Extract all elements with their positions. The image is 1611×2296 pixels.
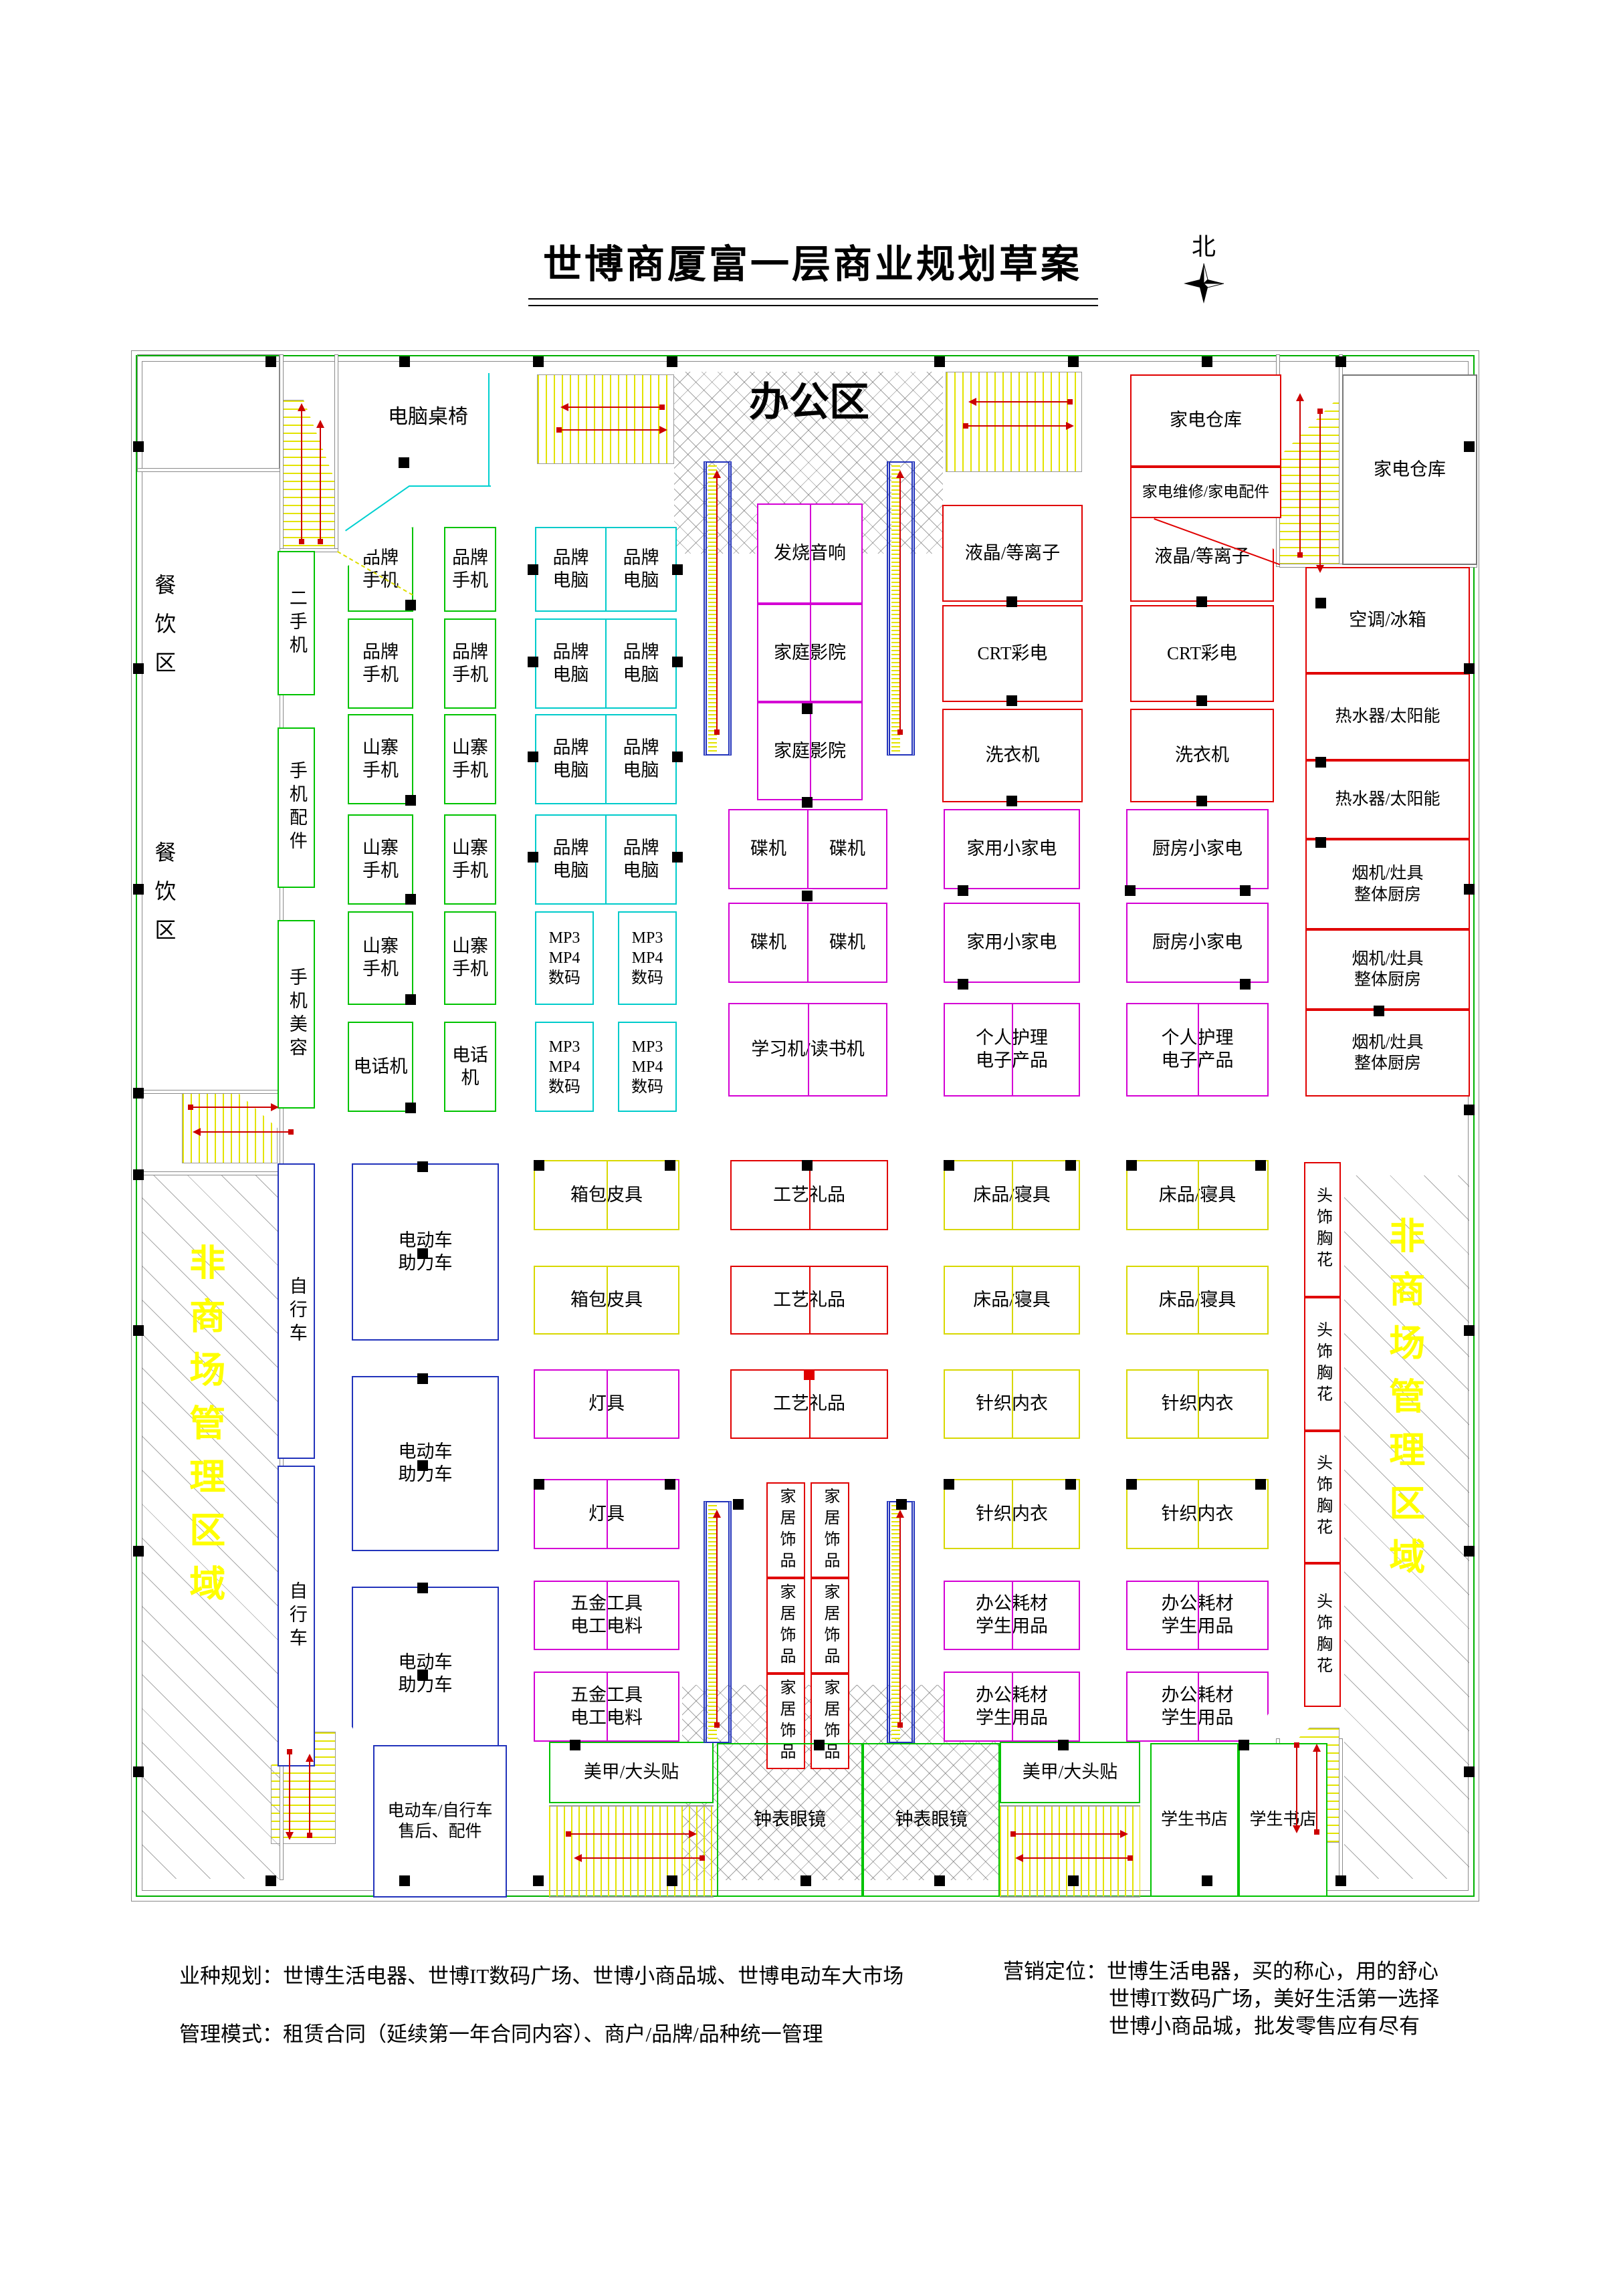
mp3-digital-2-label: MP3 MP4 数码 (631, 928, 663, 988)
flow-arrow-3 (559, 429, 659, 431)
non-mall-zone-label-left: 非商场管理区域 (182, 1244, 225, 1618)
title-underline-1 (528, 298, 1098, 300)
column-pillar-74 (1065, 1479, 1076, 1490)
column-pillar-73 (944, 1479, 954, 1490)
column-pillar-45 (405, 1103, 416, 1113)
column-pillar-79 (417, 1373, 428, 1384)
column-pillar-86 (814, 1740, 825, 1750)
hood-stove-kitchen-3-label: 烟机/灶具 整体厨房 (1352, 1032, 1424, 1074)
stall-divider (1012, 1371, 1013, 1438)
home-decor-1: 家居饰品 (766, 1482, 805, 1578)
nail-art-sticker-2-label: 美甲/大头贴 (1023, 1761, 1118, 1784)
knockoff-phone-3b: 山寨 手机 (444, 911, 496, 1005)
bicycle-1-label: 自行车 (285, 1276, 308, 1347)
flow-arrow-2 (568, 407, 662, 408)
column-pillar-80 (417, 1460, 428, 1471)
flow-arrow-19 (582, 1857, 702, 1859)
column-pillar-53 (1006, 796, 1017, 806)
column-pillar-83 (733, 1499, 744, 1510)
lamp-2: 灯具 (534, 1479, 679, 1549)
nail-art-sticker-1-label: 美甲/大头贴 (584, 1761, 679, 1784)
appliance-warehouse-2: 家电仓库 (1342, 374, 1477, 565)
household-appliance-2-label: 家用小家电 (967, 931, 1057, 954)
disc-player-pair-1-label: 碟机 (829, 838, 865, 860)
column-pillar-38 (672, 752, 683, 762)
hair-accessory-4: 头饰胸花 (1304, 1563, 1341, 1707)
bicycle-1: 自行车 (278, 1163, 315, 1459)
home-decor-2: 家居饰品 (811, 1482, 849, 1578)
column-pillar-27 (1464, 884, 1475, 895)
brand-computer-pair-4-half-2: 品牌 电脑 (605, 816, 675, 903)
escalator-upper-left (704, 461, 732, 756)
column-pillar-41 (405, 600, 416, 610)
column-pillar-26 (1464, 663, 1475, 674)
column-pillar-0 (265, 356, 276, 367)
column-pillar-23 (133, 1546, 144, 1557)
lcd-plasma-1: 液晶/等离子 (942, 505, 1083, 602)
wall-segment-1 (334, 354, 338, 552)
column-pillar-29 (1464, 1325, 1475, 1336)
secondhand-phone: 二手机 (278, 551, 315, 695)
nail-art-sticker-1: 美甲/大头贴 (549, 1742, 714, 1803)
washing-machine-1: 洗衣机 (942, 709, 1083, 802)
disc-player-pair-1-half-2: 碟机 (807, 810, 886, 888)
corner-room-top-left (137, 354, 280, 469)
column-pillar-5 (1068, 356, 1079, 367)
luggage-leather-2: 箱包皮具 (534, 1266, 679, 1335)
phone-accessories: 手机配件 (278, 727, 315, 888)
knockoff-phone-2b-label: 山寨 手机 (452, 837, 488, 883)
escalator-lower-right (887, 1501, 915, 1743)
flow-arrow-7 (1319, 411, 1321, 565)
office-supplies-3: 办公耗材 学生用品 (944, 1672, 1080, 1742)
student-bookstore-2: 学生书店 (1239, 1743, 1327, 1897)
brand-phone-2b-label: 品牌 手机 (452, 641, 488, 687)
secondhand-phone-label: 二手机 (285, 588, 308, 659)
knockoff-phone-2b: 山寨 手机 (444, 814, 496, 905)
dining-area-label-1: 餐饮区 (151, 574, 177, 690)
marketing-line-3: 世博小商品城，批发零售应有尽有 (1003, 2013, 1578, 2040)
bedding-4: 床品/寝具 (1126, 1266, 1269, 1335)
knit-underwear-1: 针织内衣 (944, 1369, 1080, 1439)
hair-accessory-2: 头饰胸花 (1304, 1297, 1341, 1431)
home-decor-3: 家居饰品 (766, 1578, 805, 1674)
knit-underwear-3: 针织内衣 (944, 1479, 1080, 1549)
column-pillar-72 (665, 1479, 675, 1490)
column-pillar-43 (405, 894, 416, 905)
stall-divider (607, 1161, 608, 1229)
hood-stove-kitchen-1: 烟机/灶具 整体厨房 (1305, 839, 1470, 929)
learning-machine: 学习机/读书机 (728, 1003, 887, 1097)
flow-arrow-4 (976, 401, 1070, 403)
stall-divider (810, 605, 811, 701)
craft-gift-2: 工艺礼品 (730, 1266, 888, 1335)
ac-fridge-label: 空调/冰箱 (1349, 609, 1426, 632)
disc-player-pair-1-label: 碟机 (750, 838, 786, 860)
brand-phone-2a-label: 品牌 手机 (362, 641, 399, 687)
column-pillar-31 (1464, 1766, 1475, 1777)
column-pillar-58 (958, 979, 968, 990)
stair-top-center-right (946, 372, 1082, 472)
marketing-label: 营销定位： (1003, 1960, 1107, 1983)
column-pillar-63 (1374, 1006, 1384, 1016)
stall-divider (1198, 1371, 1199, 1438)
notes-right: 营销定位：世博生活电器，买的称心，用的舒心 世博IT数码广场，美好生活第一选择 … (1003, 1958, 1578, 2040)
household-appliance-1: 家用小家电 (944, 809, 1080, 889)
knockoff-phone-1a: 山寨 手机 (348, 714, 413, 804)
watch-glasses-2-label: 钟表眼镜 (895, 1809, 968, 1831)
ebike-service-parts-label: 电动车/自行车 售后、配件 (388, 1801, 493, 1843)
column-pillar-8 (265, 1875, 276, 1886)
column-pillar-84 (896, 1499, 907, 1510)
title-underline-2 (528, 305, 1098, 306)
column-pillar-61 (1315, 757, 1326, 768)
disc-player-pair-2-label: 碟机 (829, 931, 865, 954)
luggage-leather-1: 箱包皮具 (534, 1160, 679, 1230)
stall-divider (607, 1673, 608, 1740)
escalator-upper-right (887, 461, 915, 756)
disc-player-pair-2-label: 碟机 (750, 931, 786, 954)
home-decor-4-label: 家居饰品 (820, 1583, 840, 1669)
crt-tv-1-label: CRT彩电 (978, 643, 1048, 665)
column-pillar-82 (417, 1670, 428, 1680)
brand-computer-pair-3-label: 品牌 电脑 (623, 737, 659, 782)
column-pillar-30 (1464, 1546, 1475, 1557)
page-title: 世博商厦富一层商业规划草案 (508, 233, 1117, 289)
appliance-warehouse-1-label: 家电仓库 (1170, 409, 1242, 432)
brand-computer-pair-3: 品牌 电脑品牌 电脑 (535, 714, 677, 804)
marketing-line-1: 世博生活电器，买的称心，用的舒心 (1107, 1960, 1438, 1983)
hair-accessory-2-label: 头饰胸花 (1313, 1321, 1333, 1407)
column-pillar-69 (1126, 1160, 1137, 1171)
column-pillar-14 (1068, 1875, 1079, 1886)
stall-divider (808, 1004, 809, 1095)
knockoff-phone-1b-label: 山寨 手机 (452, 737, 488, 782)
column-pillar-52 (1196, 695, 1207, 706)
column-pillar-37 (528, 752, 538, 762)
stall-divider (1012, 1004, 1013, 1095)
brand-computer-pair-1-half-1: 品牌 电脑 (536, 528, 605, 610)
household-appliance-1-label: 家用小家电 (967, 838, 1057, 860)
column-pillar-32 (399, 457, 409, 468)
computer-desk-area-label: 电脑桌椅 (348, 405, 508, 429)
hifi-audio: 发烧音响 (757, 503, 863, 604)
column-pillar-71 (534, 1479, 544, 1490)
appliance-repair-label: 家电维修/家电配件 (1142, 483, 1269, 502)
brand-computer-pair-2: 品牌 电脑品牌 电脑 (535, 618, 677, 709)
knockoff-phone-3a-label: 山寨 手机 (362, 935, 399, 981)
column-pillar-55 (958, 885, 968, 896)
washing-machine-2-label: 洗衣机 (1175, 744, 1229, 767)
column-pillar-20 (133, 1088, 144, 1099)
telephone-2: 电话机 (444, 1022, 496, 1112)
craft-gift-3: 工艺礼品 (730, 1369, 888, 1439)
brand-phone-1b: 品牌 手机 (444, 527, 496, 612)
stall-divider (1198, 1267, 1199, 1333)
flow-arrow-9 (899, 478, 901, 732)
column-pillar-70 (1255, 1160, 1266, 1171)
student-bookstore-2-label: 学生书店 (1249, 1809, 1316, 1830)
column-pillar-87 (1058, 1740, 1069, 1750)
mp3-digital-4: MP3 MP4 数码 (618, 1022, 677, 1112)
column-pillar-9 (399, 1875, 410, 1886)
brand-computer-pair-2-half-2: 品牌 电脑 (605, 620, 675, 707)
column-pillar-76 (1255, 1479, 1266, 1490)
hood-stove-kitchen-2-label: 烟机/灶具 整体厨房 (1352, 949, 1424, 991)
kitchen-appliance-1-label: 厨房小家电 (1152, 838, 1243, 860)
stall-divider (1198, 1480, 1199, 1548)
kitchen-appliance-2: 厨房小家电 (1126, 903, 1269, 983)
column-pillar-50 (1196, 596, 1207, 607)
stall-divider (809, 1161, 811, 1229)
home-decor-3-label: 家居饰品 (776, 1583, 796, 1669)
appliance-warehouse-2-label: 家电仓库 (1374, 459, 1446, 481)
stall-divider (1198, 1161, 1199, 1229)
column-pillar-40 (672, 852, 683, 863)
column-pillar-28 (1464, 1105, 1475, 1115)
column-pillar-11 (667, 1875, 677, 1886)
flow-arrow-5 (966, 425, 1066, 427)
brand-computer-pair-1-label: 品牌 电脑 (553, 547, 589, 592)
hair-accessory-3-label: 头饰胸花 (1313, 1454, 1333, 1540)
column-pillar-13 (934, 1875, 945, 1886)
appliance-repair: 家电维修/家电配件 (1130, 467, 1281, 518)
column-pillar-6 (1202, 356, 1212, 367)
wall-segment-2 (137, 468, 280, 472)
hardware-tools-2: 五金工具 电工电料 (534, 1672, 679, 1742)
bedding-3: 床品/寝具 (944, 1266, 1080, 1335)
column-pillar-17 (133, 441, 144, 452)
flow-arrow-6 (1299, 401, 1301, 555)
student-bookstore-1-label: 学生书店 (1161, 1809, 1228, 1830)
column-pillar-35 (528, 657, 538, 667)
column-pillar-59 (1240, 979, 1251, 990)
flow-arrow-10 (716, 1518, 718, 1725)
column-pillar-47 (802, 797, 813, 808)
brand-phone-2a: 品牌 手机 (348, 618, 413, 709)
column-pillar-36 (672, 657, 683, 667)
column-pillar-22 (133, 1325, 144, 1336)
stall-divider (810, 505, 811, 602)
knockoff-phone-2a-label: 山寨 手机 (362, 837, 399, 883)
brand-phone-2b: 品牌 手机 (444, 618, 496, 709)
nail-art-sticker-2: 美甲/大头贴 (1000, 1742, 1140, 1803)
appliance-warehouse-1: 家电仓库 (1130, 374, 1281, 467)
column-pillar-4 (934, 356, 945, 367)
home-decor-2-label: 家居饰品 (820, 1488, 840, 1573)
disc-player-pair-2-half-2: 碟机 (807, 904, 886, 982)
column-pillar-78 (417, 1248, 428, 1259)
hood-stove-kitchen-2: 烟机/灶具 整体厨房 (1305, 929, 1470, 1010)
flow-arrow-0 (301, 411, 302, 542)
column-pillar-42 (405, 795, 416, 806)
stall-divider (810, 703, 811, 799)
water-heater-solar-1-label: 热水器/太阳能 (1335, 706, 1440, 727)
telephone-2-label: 电话机 (445, 1044, 495, 1090)
column-pillar-25 (1464, 441, 1475, 452)
brand-computer-pair-4-label: 品牌 电脑 (553, 837, 589, 883)
column-pillar-60 (1315, 598, 1326, 608)
crt-tv-2-label: CRT彩电 (1167, 643, 1237, 665)
column-pillar-2 (533, 356, 544, 367)
stall-divider (1198, 1582, 1199, 1649)
column-pillar-15 (1202, 1875, 1212, 1886)
ebike-service-parts: 电动车/自行车 售后、配件 (373, 1745, 507, 1898)
column-pillar-75 (1126, 1479, 1137, 1490)
hair-accessory-1: 头饰胸花 (1304, 1162, 1341, 1297)
stall-divider (1012, 1267, 1013, 1333)
hardware-tools-1: 五金工具 电工电料 (534, 1581, 679, 1650)
office-area-label: 办公区 (736, 378, 883, 427)
knit-underwear-2: 针织内衣 (1126, 1369, 1269, 1439)
wall-segment-4 (137, 1171, 280, 1175)
flow-arrow-13 (201, 1131, 291, 1133)
stall-divider (1198, 1004, 1199, 1095)
stall-divider (1012, 1582, 1013, 1649)
brand-computer-pair-2-half-1: 品牌 电脑 (536, 620, 605, 707)
knit-underwear-4: 针织内衣 (1126, 1479, 1269, 1549)
knockoff-phone-2a: 山寨 手机 (348, 814, 413, 905)
watch-glasses-2: 钟表眼镜 (863, 1743, 1000, 1897)
washing-machine-1-label: 洗衣机 (986, 744, 1040, 767)
brand-computer-pair-2-label: 品牌 电脑 (553, 641, 589, 687)
bedding-2: 床品/寝具 (1126, 1160, 1269, 1230)
flow-arrow-17 (1316, 1752, 1317, 1832)
column-pillar-54 (1196, 796, 1207, 806)
compass-star-icon (1182, 262, 1225, 305)
home-decor-4: 家居饰品 (811, 1578, 849, 1674)
watch-glasses-1-label: 钟表眼镜 (754, 1809, 826, 1831)
ac-fridge: 空调/冰箱 (1305, 567, 1470, 673)
stall-divider (607, 1480, 608, 1548)
column-pillar-16 (1335, 1875, 1346, 1886)
mp3-digital-2: MP3 MP4 数码 (618, 911, 677, 1005)
column-pillar-77 (417, 1161, 428, 1172)
entrance-ramp-left (549, 1805, 714, 1898)
disc-player-pair-2-half-1: 碟机 (730, 904, 807, 982)
stall-divider (809, 1371, 811, 1438)
column-pillar-65 (665, 1160, 675, 1171)
wall-segment-10 (1339, 1738, 1343, 1880)
brand-computer-pair-1-half-2: 品牌 电脑 (605, 528, 675, 610)
column-pillar-49 (1006, 596, 1017, 607)
management-mode-label: 管理模式： (179, 2023, 283, 2046)
crt-tv-2: CRT彩电 (1130, 605, 1274, 702)
column-pillar-57 (1240, 885, 1251, 896)
management-mode-text: 租赁合同（延续第一年合同内容）、商户/品牌/品种统一管理 (283, 2023, 823, 2046)
title-block: 世博商厦富一层商业规划草案 (508, 233, 1117, 289)
brand-phone-1b-label: 品牌 手机 (452, 547, 488, 592)
stair-top-center-left (537, 374, 674, 464)
hair-accessory-1-label: 头饰胸花 (1313, 1187, 1333, 1272)
column-pillar-7 (1335, 356, 1346, 367)
column-pillar-66 (802, 1160, 813, 1171)
column-pillar-18 (133, 663, 144, 674)
bicycle-2-label: 自行车 (285, 1581, 308, 1651)
hood-stove-kitchen-3: 烟机/灶具 整体厨房 (1305, 1010, 1470, 1097)
brand-computer-pair-4: 品牌 电脑品牌 电脑 (535, 814, 677, 905)
knockoff-phone-1a-label: 山寨 手机 (362, 737, 399, 782)
floor-plan: 品牌 手机品牌 手机品牌 手机品牌 手机山寨 手机山寨 手机山寨 手机山寨 手机… (0, 0, 1611, 2296)
lcd-plasma-1-label: 液晶/等离子 (965, 542, 1061, 565)
personal-care-2: 个人护理 电子产品 (1126, 1003, 1269, 1097)
disc-player-pair-1-half-1: 碟机 (730, 810, 807, 888)
column-pillar-39 (528, 852, 538, 863)
disc-player-pair-1: 碟机碟机 (728, 809, 887, 889)
home-theater-1: 家庭影院 (757, 604, 863, 702)
flow-arrow-1 (320, 428, 321, 542)
crt-tv-1: CRT彩电 (942, 605, 1083, 702)
stall-divider (607, 1267, 608, 1333)
stall-divider (809, 1267, 811, 1333)
business-plan-label: 业种规划： (179, 1964, 283, 1988)
column-pillar-19 (133, 884, 144, 895)
column-pillar-88 (1239, 1740, 1249, 1750)
flow-arrow-12 (191, 1107, 271, 1108)
brand-computer-pair-3-half-1: 品牌 电脑 (536, 715, 605, 803)
mp3-digital-3: MP3 MP4 数码 (535, 1022, 594, 1112)
brand-computer-pair-3-label: 品牌 电脑 (553, 737, 589, 782)
mp3-digital-3-label: MP3 MP4 数码 (548, 1037, 580, 1097)
home-theater-2: 家庭影院 (757, 702, 863, 800)
office-supplies-4: 办公耗材 学生用品 (1126, 1672, 1269, 1742)
column-pillar-44 (405, 994, 416, 1005)
phone-accessories-label: 手机配件 (285, 761, 308, 854)
knockoff-phone-3b-label: 山寨 手机 (452, 935, 488, 981)
lamp-1: 灯具 (534, 1369, 679, 1439)
water-heater-solar-2-label: 热水器/太阳能 (1335, 789, 1440, 810)
brand-computer-pair-1-label: 品牌 电脑 (623, 547, 659, 592)
compass-north-label: 北 (1180, 227, 1227, 262)
column-pillar-34 (672, 564, 683, 575)
telephone-1: 电话机 (348, 1022, 413, 1112)
escalator-lower-left (704, 1501, 732, 1743)
column-pillar-68 (1065, 1160, 1076, 1171)
telephone-1-label: 电话机 (354, 1056, 408, 1078)
kitchen-appliance-1: 厨房小家电 (1126, 809, 1269, 889)
mp3-digital-4-label: MP3 MP4 数码 (631, 1037, 663, 1097)
business-plan-text: 世博生活电器、世博IT数码广场、世博小商品城、世博电动车大市场 (283, 1964, 903, 1988)
column-pillar-81 (417, 1583, 428, 1593)
knockoff-phone-1b: 山寨 手机 (444, 714, 496, 804)
flow-arrow-16 (1296, 1745, 1297, 1825)
flow-arrow-8 (716, 478, 718, 732)
flow-arrow-18 (568, 1833, 689, 1835)
personal-care-1: 个人护理 电子产品 (944, 1003, 1080, 1097)
column-pillar-62 (1315, 837, 1326, 848)
stall-divider (1012, 1161, 1013, 1229)
office-supplies-1: 办公耗材 学生用品 (944, 1581, 1080, 1650)
column-pillar-33 (528, 564, 538, 575)
brand-computer-pair-2-label: 品牌 电脑 (623, 641, 659, 687)
column-pillar-1 (399, 356, 410, 367)
column-pillar-67 (944, 1160, 954, 1171)
flow-arrow-21 (1023, 1857, 1130, 1859)
knockoff-phone-3a: 山寨 手机 (348, 911, 413, 1005)
flow-arrow-15 (309, 1762, 310, 1835)
bicycle-2: 自行车 (278, 1466, 315, 1766)
flow-arrow-11 (899, 1518, 901, 1725)
home-decor-1-label: 家居饰品 (776, 1488, 796, 1573)
washing-machine-2: 洗衣机 (1130, 709, 1274, 802)
brand-computer-pair-1: 品牌 电脑品牌 电脑 (535, 527, 677, 612)
compass: 北 (1180, 227, 1227, 308)
hood-stove-kitchen-1-label: 烟机/灶具 整体厨房 (1352, 863, 1424, 905)
plan-line-1 (409, 485, 491, 487)
flow-arrow-14 (289, 1752, 290, 1832)
notes-left: 业种规划：世博生活电器、世博IT数码广场、世博小商品城、世博电动车大市场 管理模… (179, 1959, 975, 2075)
dining-area-label-2: 餐饮区 (151, 841, 177, 957)
